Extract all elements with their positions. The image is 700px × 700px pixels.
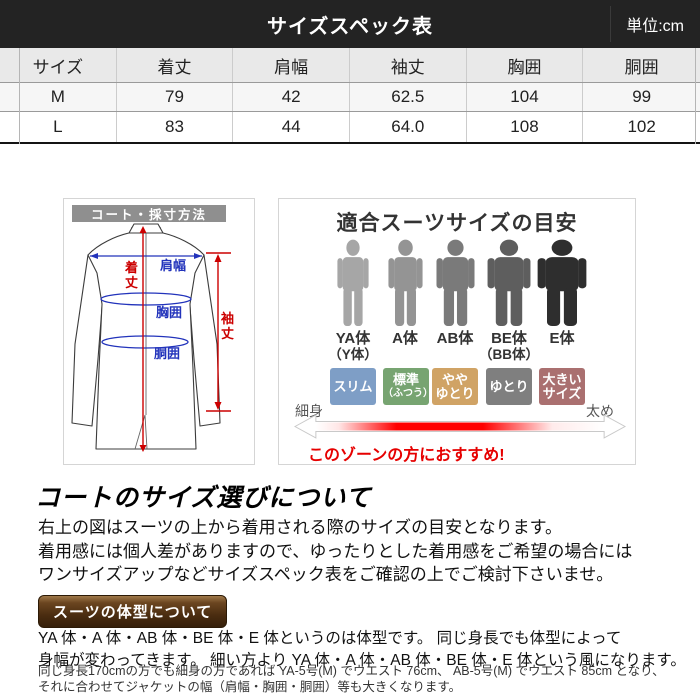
size-cell: M <box>0 83 117 111</box>
body-type-section-tag: スーツの体型について <box>38 595 227 628</box>
size-table-header-row: サイズ 着丈 肩幅 袖丈 胸囲 胴囲 <box>0 48 700 83</box>
table-outer-border-left <box>19 48 20 144</box>
measure-label-shoulder: 肩幅 <box>160 259 186 274</box>
column-header-chest: 胸囲 <box>467 48 584 82</box>
table-outer-border-right <box>695 48 696 144</box>
fit-badge-loose: ゆとり <box>486 368 532 405</box>
table-row-m: M 79 42 62.5 104 99 <box>0 83 700 112</box>
size-spec-header: サイズスペック表 単位:cm <box>0 0 700 48</box>
column-header-length: 着丈 <box>117 48 234 82</box>
fit-badge-standard: 標準（ふつう） <box>383 368 429 405</box>
paragraph-line: 右上の図はスーツの上から着用される際のサイズの目安となります。 <box>38 516 632 540</box>
body-type-figure: E体 <box>529 239 595 347</box>
table-row-l: L 83 44 64.0 108 102 <box>0 112 700 142</box>
fit-badge-slim: スリム <box>330 368 376 405</box>
topbar-divider <box>610 6 611 42</box>
paragraph-line: YA 体・A 体・AB 体・BE 体・E 体というのは体型です。 同じ身長でも体… <box>38 628 686 650</box>
value-cell: 62.5 <box>350 83 467 111</box>
measure-label-chest: 胸囲 <box>156 306 182 321</box>
unit-label: 単位:cm <box>626 0 684 48</box>
body-type-alias: （Y体） <box>320 347 386 362</box>
column-header-size: サイズ <box>0 48 117 82</box>
paragraph-line: ワンサイズアップなどサイズスペック表をご確認の上でご検討下さいませ。 <box>38 563 632 587</box>
measure-label-sleeve: 袖丈 <box>220 312 235 341</box>
body-type-silhouette-icon <box>388 239 423 327</box>
body-type-silhouette-icon <box>537 239 587 327</box>
coat-size-paragraph: 右上の図はスーツの上から着用される際のサイズの目安となります。 着用感には個人差… <box>38 516 632 587</box>
value-cell: 104 <box>467 83 584 111</box>
fit-range-arrow <box>294 413 626 440</box>
value-cell: 102 <box>583 112 700 142</box>
coat-measure-diagram: コート・採寸方法 着丈 肩幅 胸囲 胴囲 袖丈 <box>63 198 255 465</box>
body-type-silhouette-icon <box>436 239 475 327</box>
paragraph-line: 着用感には個人差がありますので、ゆったりとした着用感をご希望の場合には <box>38 540 632 564</box>
value-cell: 79 <box>117 83 234 111</box>
recommend-zone-text: このゾーンの方におすすめ! <box>308 441 505 465</box>
page-title: サイズスペック表 <box>0 0 700 48</box>
note-line: 同じ身長170cmの方でも細身の方であれば YA-5号(M) でウエスト 76c… <box>38 664 665 680</box>
body-type-note: 同じ身長170cmの方でも細身の方であれば YA-5号(M) でウエスト 76c… <box>38 664 665 695</box>
value-cell: 83 <box>117 112 234 142</box>
measure-diagram-title: コート・採寸方法 <box>72 205 226 222</box>
fit-badge-slightly-loose: ややゆとり <box>432 368 478 405</box>
value-cell: 64.0 <box>350 112 467 142</box>
value-cell: 108 <box>467 112 584 142</box>
value-cell: 99 <box>583 83 700 111</box>
value-cell: 44 <box>233 112 350 142</box>
size-cell: L <box>0 112 117 142</box>
body-type-label: E体 <box>529 330 595 347</box>
fit-chart-title: 適合スーツサイズの目安 <box>279 207 635 237</box>
value-cell: 42 <box>233 83 350 111</box>
body-type-silhouette-icon <box>487 239 531 327</box>
measure-label-waist: 胴囲 <box>154 347 180 362</box>
measure-label-length: 着丈 <box>124 261 139 290</box>
body-type-silhouette-icon <box>337 239 369 327</box>
body-type-alias: （BB体） <box>476 347 542 362</box>
column-header-shoulder: 肩幅 <box>233 48 350 82</box>
fit-badge-large: 大きいサイズ <box>539 368 585 405</box>
column-header-sleeve: 袖丈 <box>350 48 467 82</box>
coat-size-heading: コートのサイズ選びについて <box>35 478 372 514</box>
suit-fit-chart: 適合スーツサイズの目安 YA体 （Y体） A体 <box>278 198 636 465</box>
size-table: サイズ 着丈 肩幅 袖丈 胸囲 胴囲 M 79 42 62.5 104 99 L… <box>0 48 700 144</box>
column-header-waist: 胴囲 <box>583 48 700 82</box>
size-spec-page: サイズスペック表 単位:cm サイズ 着丈 肩幅 袖丈 胸囲 胴囲 M 79 4… <box>0 0 700 700</box>
note-line: それに合わせてジャケットの幅（肩幅・胸囲・胴囲）等も大きくなります。 <box>38 680 665 696</box>
